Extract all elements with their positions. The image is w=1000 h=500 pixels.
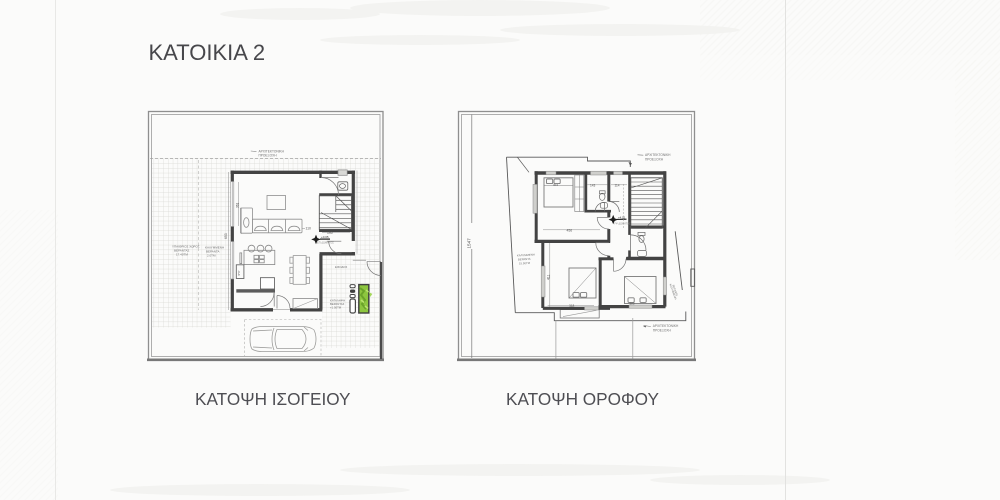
svg-text:114: 114: [615, 183, 620, 187]
svg-text:ΨΥΓ: ΨΥΓ: [237, 270, 241, 276]
svg-text:17.40ΤΜ: 17.40ΤΜ: [176, 253, 188, 257]
svg-text:ΑΡΧΙΤΕΚΤΟΝΙΚΗ: ΑΡΧΙΤΕΚΤΟΝΙΚΗ: [653, 324, 679, 328]
svg-text:15.50ΤΜ: 15.50ΤΜ: [519, 261, 531, 266]
svg-text:456: 456: [567, 228, 573, 232]
svg-text:ΥΨ.ΔΩΜΑΤΟΣ: ΥΨ.ΔΩΜΑΤΟΣ: [614, 223, 631, 226]
svg-text:+0.05: +0.05: [321, 235, 329, 239]
svg-text:653: 653: [224, 233, 228, 239]
svg-text:ΠΡΟΕΞΟΧΗ: ΠΡΟΕΞΟΧΗ: [653, 328, 672, 332]
svg-text:143: 143: [590, 183, 596, 187]
svg-text:304: 304: [553, 183, 558, 187]
svg-text:318: 318: [569, 304, 575, 308]
svg-text:2.0ΤΜ: 2.0ΤΜ: [207, 254, 216, 258]
svg-text:+1.50ΤΜ: +1.50ΤΜ: [330, 306, 342, 310]
svg-text:361: 361: [236, 202, 240, 208]
svg-text:+4.02: +4.02: [618, 215, 626, 219]
svg-text:190: 190: [327, 231, 333, 235]
svg-text:ΠΡΟΕΞΟΧΗ: ΠΡΟΕΞΟΧΗ: [259, 154, 278, 158]
svg-text:ΕΠ.ΔΩΜΑΤΟΣ: ΕΠ.ΔΩΜΑΤΟΣ: [317, 241, 334, 245]
svg-text:ΠΡΟΕΞΟΧΗ: ΠΡΟΕΞΟΧΗ: [645, 157, 664, 161]
svg-text:411: 411: [547, 274, 551, 280]
svg-text:ΑΡΧΙΤΕΚΤΟΝΙΚΗ: ΑΡΧΙΤΕΚΤΟΝΙΚΗ: [645, 153, 671, 157]
svg-text:110: 110: [306, 226, 312, 230]
svg-text:ΕΙΣΟΔΟΣ: ΕΙΣΟΔΟΣ: [335, 265, 347, 269]
svg-text:380: 380: [630, 301, 635, 305]
svg-text:1547: 1547: [467, 238, 472, 249]
